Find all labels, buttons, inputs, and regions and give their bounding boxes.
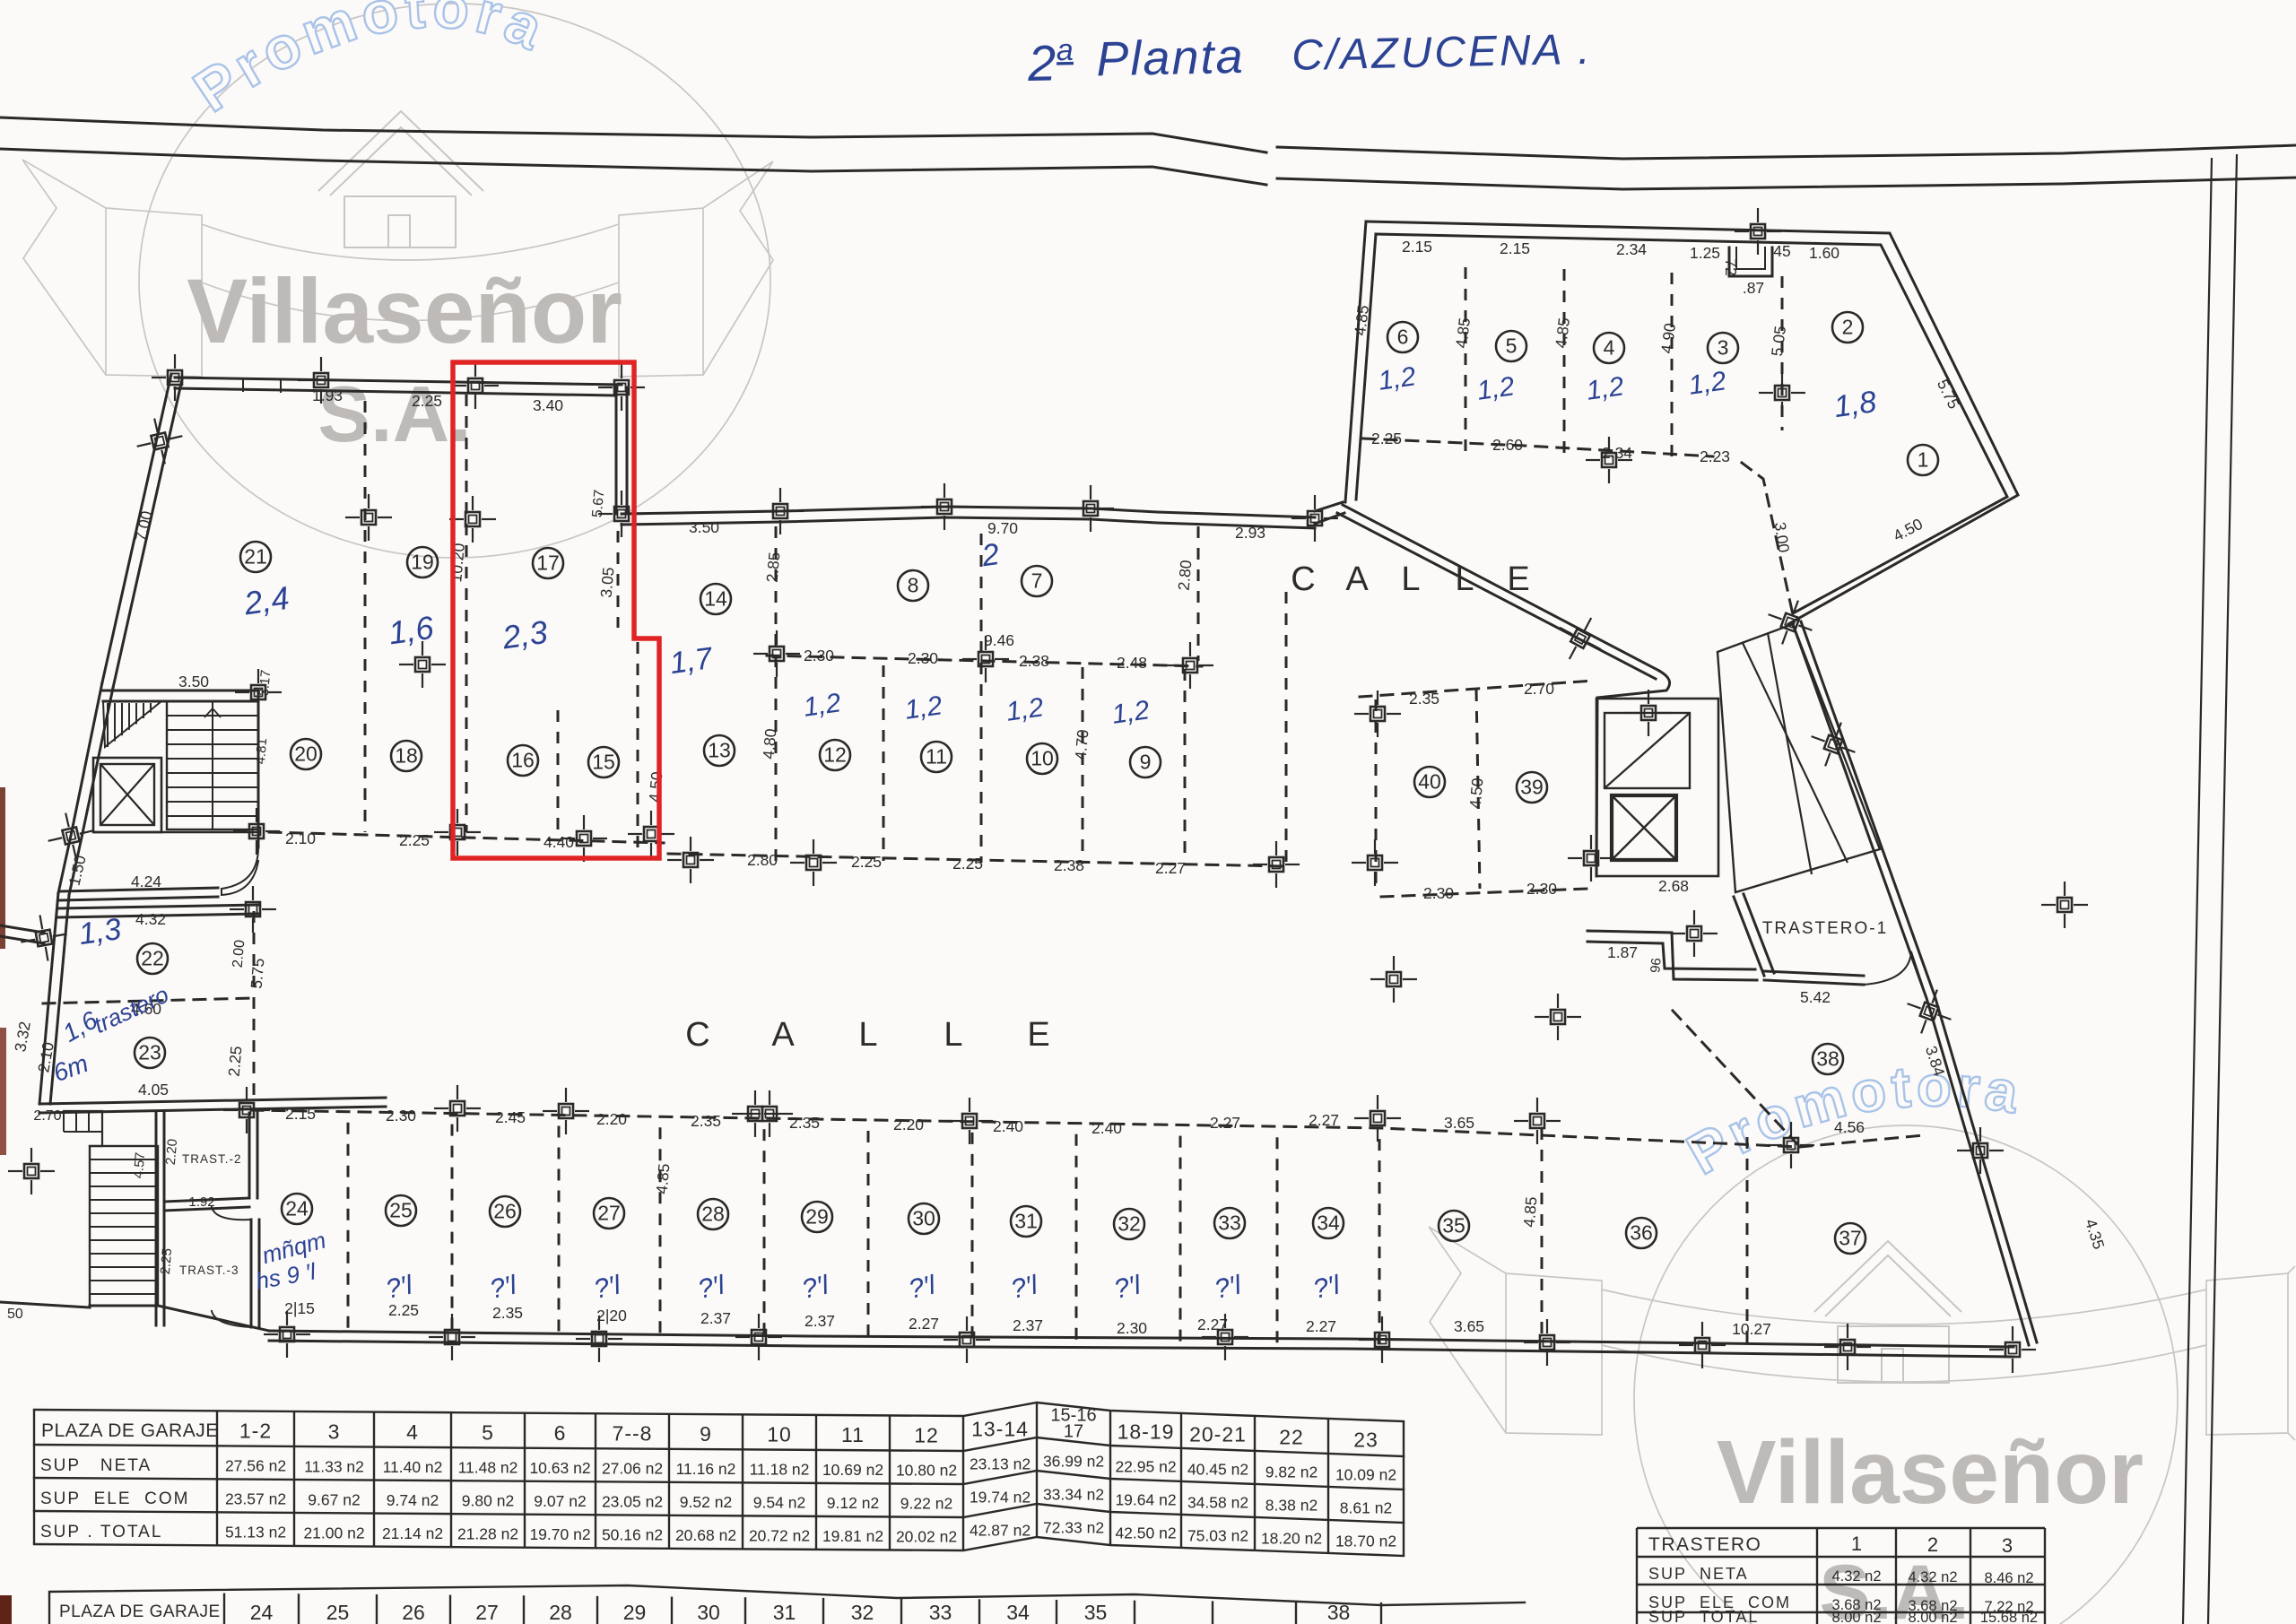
svg-text:Villaseñor: Villaseñor [1717,1422,2144,1523]
svg-text:2.35: 2.35 [691,1112,721,1130]
svg-text:8.38 n2: 8.38 n2 [1265,1496,1318,1514]
svg-text:2.15: 2.15 [1500,239,1530,257]
svg-text:2.68: 2.68 [1658,877,1689,895]
svg-text:2.30: 2.30 [1117,1319,1147,1337]
svg-text:5: 5 [482,1420,494,1444]
svg-text:SUP TOTAL: SUP TOTAL [1648,1608,1759,1624]
svg-text:1,2: 1,2 [1377,361,1418,396]
svg-text:27.56 n2: 27.56 n2 [225,1457,286,1475]
svg-text:Planta: Planta [1096,30,1245,86]
svg-text:4.70: 4.70 [1072,728,1092,760]
svg-text:9.12 n2: 9.12 n2 [827,1494,879,1512]
svg-text:33: 33 [929,1601,952,1624]
svg-text:20.72 n2: 20.72 n2 [749,1527,810,1545]
svg-text:3.50: 3.50 [178,673,209,690]
svg-text:34: 34 [1317,1211,1340,1235]
svg-text:4.50: 4.50 [646,770,666,803]
svg-text:23: 23 [1353,1428,1378,1451]
svg-text:8.61 n2: 8.61 n2 [1340,1498,1392,1516]
svg-text:11: 11 [926,745,947,769]
svg-text:10.20: 10.20 [447,543,468,584]
svg-text:E: E [1027,1016,1049,1054]
svg-text:4: 4 [406,1420,419,1444]
svg-text:2.25: 2.25 [158,1247,175,1275]
svg-text:20: 20 [294,743,317,766]
svg-text:17: 17 [536,551,560,575]
svg-text:11.48 n2: 11.48 n2 [458,1458,518,1476]
svg-text:C: C [1291,560,1315,598]
svg-text:9.80 n2: 9.80 n2 [462,1491,514,1509]
svg-text:1,2: 1,2 [1110,695,1152,730]
svg-text:1,7: 1,7 [667,641,715,681]
svg-text:4.57: 4.57 [131,1151,148,1179]
svg-text:38: 38 [1327,1601,1351,1624]
svg-text:2.80: 2.80 [747,851,778,869]
svg-text:16: 16 [511,749,535,772]
svg-text:21.14 n2: 21.14 n2 [382,1524,443,1542]
svg-text:1,2: 1,2 [1585,371,1626,406]
svg-text:2.27: 2.27 [1197,1316,1228,1333]
svg-text:34.58 n2: 34.58 n2 [1187,1493,1248,1511]
svg-text:2.25: 2.25 [225,1046,246,1078]
svg-text:75.03 n2: 75.03 n2 [1187,1526,1248,1544]
svg-text:2: 2 [1927,1533,1938,1556]
svg-text:10.27: 10.27 [1732,1320,1771,1338]
svg-text:2.25: 2.25 [851,853,882,871]
svg-text:30: 30 [697,1601,720,1624]
svg-text:1,6: 1,6 [387,609,437,652]
svg-text:51.13 n2: 51.13 n2 [225,1524,286,1541]
svg-text:1: 1 [1918,448,1929,472]
svg-text:2: 2 [1842,316,1854,339]
svg-text:32: 32 [1118,1212,1141,1236]
svg-text:2.38: 2.38 [1019,652,1049,670]
svg-text:50: 50 [7,1307,23,1322]
svg-text:1,2: 1,2 [1004,692,1046,727]
svg-text:27: 27 [475,1601,499,1624]
svg-text:2.40: 2.40 [1091,1119,1122,1137]
svg-text:40.45 n2: 40.45 n2 [1187,1460,1248,1478]
svg-text:72.33 n2: 72.33 n2 [1043,1519,1104,1537]
svg-text:2.37: 2.37 [1013,1316,1043,1334]
svg-text:2.38: 2.38 [1054,856,1084,874]
svg-text:40: 40 [1418,770,1441,794]
svg-text:18.70 n2: 18.70 n2 [1335,1532,1396,1550]
svg-text:39: 39 [1520,776,1544,799]
svg-text:4: 4 [1604,336,1615,360]
svg-text:72: 72 [1722,258,1740,275]
svg-text:1,2: 1,2 [1687,366,1728,401]
svg-text:10: 10 [1031,747,1054,770]
svg-text:1,2: 1,2 [903,690,944,725]
svg-text:30: 30 [912,1207,935,1230]
svg-text:2|20: 2|20 [596,1307,627,1324]
svg-text:A: A [1345,560,1369,598]
svg-text:23.57 n2: 23.57 n2 [225,1490,286,1508]
svg-text:9: 9 [1140,751,1152,774]
svg-text:18.20 n2: 18.20 n2 [1261,1529,1322,1547]
svg-text:3: 3 [1718,336,1729,360]
svg-text:10.80 n2: 10.80 n2 [896,1462,957,1480]
svg-text:1.25: 1.25 [1690,244,1720,262]
svg-text:9.52 n2: 9.52 n2 [680,1493,732,1511]
svg-text:2.25: 2.25 [399,831,430,849]
svg-text:TRAST.-3: TRAST.-3 [179,1264,239,1277]
svg-text:1: 1 [1851,1533,1862,1555]
svg-text:PLAZA DE GARAJE: PLAZA DE GARAJE [59,1602,221,1621]
svg-text:19.70 n2: 19.70 n2 [529,1525,590,1543]
svg-text:2.25: 2.25 [412,392,442,410]
svg-text:29: 29 [805,1205,829,1229]
svg-text:2.45: 2.45 [495,1108,526,1126]
svg-text:10.63 n2: 10.63 n2 [529,1459,590,1477]
svg-text:11: 11 [841,1423,865,1446]
svg-text:25: 25 [389,1199,413,1222]
svg-text:2.20: 2.20 [893,1116,924,1133]
svg-text:PLAZA DE GARAJE: PLAZA DE GARAJE [41,1420,219,1441]
svg-text:50.16 n2: 50.16 n2 [602,1526,663,1544]
svg-text:SUP . TOTAL: SUP . TOTAL [40,1523,162,1541]
svg-text:.87: .87 [1743,279,1764,297]
svg-text:35: 35 [1442,1214,1465,1238]
svg-text:6: 6 [1397,326,1409,349]
svg-text:42.87 n2: 42.87 n2 [970,1522,1031,1540]
svg-text:SUP NETA: SUP NETA [40,1456,152,1475]
svg-text:L: L [858,1016,877,1054]
svg-text:7--8: 7--8 [613,1422,653,1446]
svg-text:2.37: 2.37 [804,1312,835,1330]
svg-text:9.70: 9.70 [987,519,1018,537]
svg-text:2.00: 2.00 [230,939,248,968]
svg-text:9.22 n2: 9.22 n2 [900,1495,952,1513]
svg-text:3: 3 [328,1420,341,1443]
svg-text:SUP NETA: SUP NETA [1648,1565,1749,1583]
svg-text:24: 24 [285,1197,309,1220]
svg-text:4.80: 4.80 [760,727,780,760]
svg-text:2.60: 2.60 [1492,436,1523,454]
svg-text:33: 33 [1218,1211,1241,1235]
svg-text:33.34 n2: 33.34 n2 [1043,1486,1104,1504]
svg-text:TRAST.-2: TRAST.-2 [182,1152,242,1166]
svg-text:9.54 n2: 9.54 n2 [753,1494,805,1512]
svg-text:2.48: 2.48 [1117,654,1147,672]
svg-text:L: L [1401,560,1420,598]
svg-text:6: 6 [554,1421,567,1445]
svg-text:5.75: 5.75 [248,958,268,990]
svg-text:5.67: 5.67 [590,489,608,518]
svg-text:13: 13 [708,739,731,762]
svg-text:21: 21 [244,545,267,569]
svg-text:2.34: 2.34 [1616,240,1647,258]
svg-text:96: 96 [1648,958,1664,974]
svg-text:3.40: 3.40 [533,396,563,414]
svg-text:36: 36 [1630,1221,1653,1245]
svg-text:2.10: 2.10 [285,829,316,847]
svg-text:4.85: 4.85 [1520,1196,1541,1229]
svg-text:2.30: 2.30 [1526,880,1557,898]
svg-text:4.56: 4.56 [1834,1118,1865,1136]
svg-text:1.93: 1.93 [312,386,343,404]
svg-text:12: 12 [914,1424,939,1447]
svg-text:1.87: 1.87 [1607,943,1638,961]
svg-text:8.00 n2: 8.00 n2 [1908,1610,1957,1624]
svg-text:5: 5 [1506,334,1518,358]
svg-text:11.16 n2: 11.16 n2 [676,1460,736,1478]
svg-text:36.99 n2: 36.99 n2 [1043,1453,1104,1471]
svg-text:2.70: 2.70 [1524,680,1554,698]
svg-text:C/AZUCENA .: C/AZUCENA . [1291,26,1593,80]
svg-text:20.68 n2: 20.68 n2 [675,1526,736,1544]
svg-text:2.30: 2.30 [908,649,938,667]
svg-text:25: 25 [326,1601,350,1624]
svg-text:2.35: 2.35 [789,1114,820,1132]
svg-text:2: 2 [1026,34,1056,91]
svg-text:2.35: 2.35 [492,1304,523,1322]
svg-text:35: 35 [1084,1601,1108,1624]
svg-text:13-14: 13-14 [971,1418,1029,1441]
svg-text:2.30: 2.30 [1423,884,1454,902]
svg-text:23.05 n2: 23.05 n2 [602,1493,663,1511]
svg-text:2.27: 2.27 [1306,1317,1336,1335]
svg-text:5.42: 5.42 [1800,988,1831,1006]
svg-text:2,3: 2,3 [500,613,550,656]
svg-text:26: 26 [493,1200,517,1223]
svg-text:A: A [771,1016,795,1054]
svg-text:4.32 n2: 4.32 n2 [1908,1569,1957,1585]
svg-text:4.05: 4.05 [138,1081,169,1099]
svg-text:5.05: 5.05 [1768,325,1789,357]
svg-text:2.27: 2.27 [1155,859,1186,877]
svg-text:2.27: 2.27 [909,1315,939,1333]
svg-text:2.70: 2.70 [33,1108,61,1124]
svg-text:2|15: 2|15 [284,1299,315,1317]
svg-text:12: 12 [823,743,847,767]
svg-text:31: 31 [773,1601,796,1624]
svg-text:4.81: 4.81 [253,737,270,765]
svg-text:23.13 n2: 23.13 n2 [970,1455,1031,1473]
svg-text:31: 31 [1014,1210,1038,1233]
svg-text:18-19: 18-19 [1118,1420,1175,1443]
svg-text:2.27: 2.27 [1210,1114,1240,1132]
svg-text:28: 28 [549,1601,572,1624]
svg-text:1.92: 1.92 [188,1194,214,1210]
svg-text:a: a [1056,33,1074,67]
svg-text:1,3: 1,3 [76,912,123,951]
svg-text:2.23: 2.23 [1700,447,1730,465]
svg-text:10.69 n2: 10.69 n2 [822,1461,883,1479]
svg-text:17: 17 [1064,1422,1083,1442]
svg-text:27.06 n2: 27.06 n2 [602,1460,663,1478]
svg-text:11.18 n2: 11.18 n2 [750,1461,810,1479]
svg-text:4.24: 4.24 [131,873,161,890]
svg-text:8.00 n2: 8.00 n2 [1831,1610,1881,1624]
svg-text:20.02 n2: 20.02 n2 [896,1528,957,1546]
svg-text:19.64 n2: 19.64 n2 [1115,1490,1176,1508]
svg-text:34: 34 [1006,1601,1030,1624]
svg-text:C: C [685,1016,709,1054]
svg-text:4.32 n2: 4.32 n2 [1831,1568,1881,1585]
svg-text:SUP ELE COM: SUP ELE COM [40,1489,189,1508]
svg-text:2.15: 2.15 [285,1105,316,1123]
svg-text:2.40: 2.40 [993,1117,1023,1135]
svg-text:10: 10 [767,1423,792,1446]
svg-text:2.15: 2.15 [1402,238,1432,256]
svg-text:3.50: 3.50 [689,518,719,536]
svg-text:1,8: 1,8 [1831,385,1878,424]
svg-text:L: L [944,1016,962,1054]
svg-text:4.50: 4.50 [1466,777,1487,809]
svg-text:9.74 n2: 9.74 n2 [387,1491,439,1509]
svg-text:3.05: 3.05 [597,567,618,599]
svg-text:2.20: 2.20 [596,1110,627,1128]
svg-text:TRASTERO: TRASTERO [1648,1534,1761,1555]
svg-text:4.85: 4.85 [1452,317,1474,349]
svg-text:1-2: 1-2 [239,1420,272,1443]
svg-text:E: E [1507,560,1529,598]
svg-text:19: 19 [411,551,434,574]
svg-text:45: 45 [1773,242,1790,260]
svg-text:2.85: 2.85 [763,551,784,584]
svg-text:2.25: 2.25 [1371,430,1402,447]
svg-text:9: 9 [700,1422,712,1446]
svg-text:11.33 n2: 11.33 n2 [304,1457,364,1475]
svg-text:4.85: 4.85 [1552,317,1573,349]
svg-text:37: 37 [1839,1227,1862,1250]
svg-text:29: 29 [623,1601,647,1624]
svg-text:27: 27 [597,1202,621,1225]
svg-text:32: 32 [851,1601,874,1624]
svg-text:42.50 n2: 42.50 n2 [1115,1524,1176,1541]
svg-text:2.35: 2.35 [1409,690,1439,708]
svg-text:TRASTERO-1: TRASTERO-1 [1762,919,1888,938]
svg-text:2.30: 2.30 [386,1107,416,1125]
svg-text:7: 7 [1031,569,1043,593]
svg-text:9.82 n2: 9.82 n2 [1265,1463,1318,1481]
svg-text:21.00 n2: 21.00 n2 [303,1524,364,1541]
svg-text:4.85: 4.85 [653,1163,674,1195]
svg-text:2.25: 2.25 [952,855,983,873]
svg-text:9.07 n2: 9.07 n2 [534,1492,586,1510]
svg-text:4.90: 4.90 [1657,322,1679,355]
svg-text:Villaseñor: Villaseñor [187,260,622,362]
svg-text:1,2: 1,2 [802,688,843,723]
svg-text:1.60: 1.60 [1809,244,1839,262]
svg-text:20-21: 20-21 [1189,1422,1247,1446]
svg-text:4.85: 4.85 [1351,304,1372,336]
svg-text:2.20: 2.20 [163,1138,180,1166]
svg-text:3.65: 3.65 [1454,1317,1484,1335]
svg-text:1,2: 1,2 [1475,371,1517,406]
svg-text:22: 22 [141,947,164,970]
svg-text:15: 15 [592,751,615,774]
svg-text:3.65: 3.65 [1444,1114,1474,1132]
svg-text:38: 38 [1816,1047,1839,1071]
svg-text:26: 26 [402,1601,425,1624]
svg-text:19.74 n2: 19.74 n2 [970,1489,1031,1507]
svg-text:3: 3 [2002,1534,2013,1557]
svg-text:22: 22 [1279,1425,1304,1448]
svg-text:15.68 n2: 15.68 n2 [1980,1610,2038,1624]
svg-text:23: 23 [138,1041,161,1064]
svg-text:8: 8 [908,574,919,597]
svg-text:9.46: 9.46 [984,631,1014,649]
svg-text:2,4: 2,4 [241,579,291,622]
svg-text:14: 14 [704,587,727,611]
svg-text:28: 28 [701,1203,725,1226]
svg-text:11.40 n2: 11.40 n2 [383,1458,443,1476]
svg-text:18: 18 [395,744,418,768]
svg-text:2.37: 2.37 [700,1309,731,1327]
svg-text:9.67 n2: 9.67 n2 [308,1490,360,1508]
svg-text:4.32: 4.32 [135,910,166,928]
svg-text:L: L [1455,560,1474,598]
svg-text:2.93: 2.93 [1235,524,1265,542]
svg-text:24: 24 [250,1601,274,1624]
svg-text:10.09 n2: 10.09 n2 [1335,1465,1396,1483]
svg-text:21.28 n2: 21.28 n2 [457,1524,518,1542]
svg-text:2.27: 2.27 [1309,1111,1339,1129]
svg-text:19.81 n2: 19.81 n2 [822,1527,883,1545]
svg-text:22.95 n2: 22.95 n2 [1115,1457,1176,1475]
svg-text:8.46 n2: 8.46 n2 [1984,1570,2033,1586]
svg-text:2.30: 2.30 [804,647,834,664]
svg-text:4.40: 4.40 [544,833,574,851]
svg-text:2.80: 2.80 [1175,559,1196,591]
